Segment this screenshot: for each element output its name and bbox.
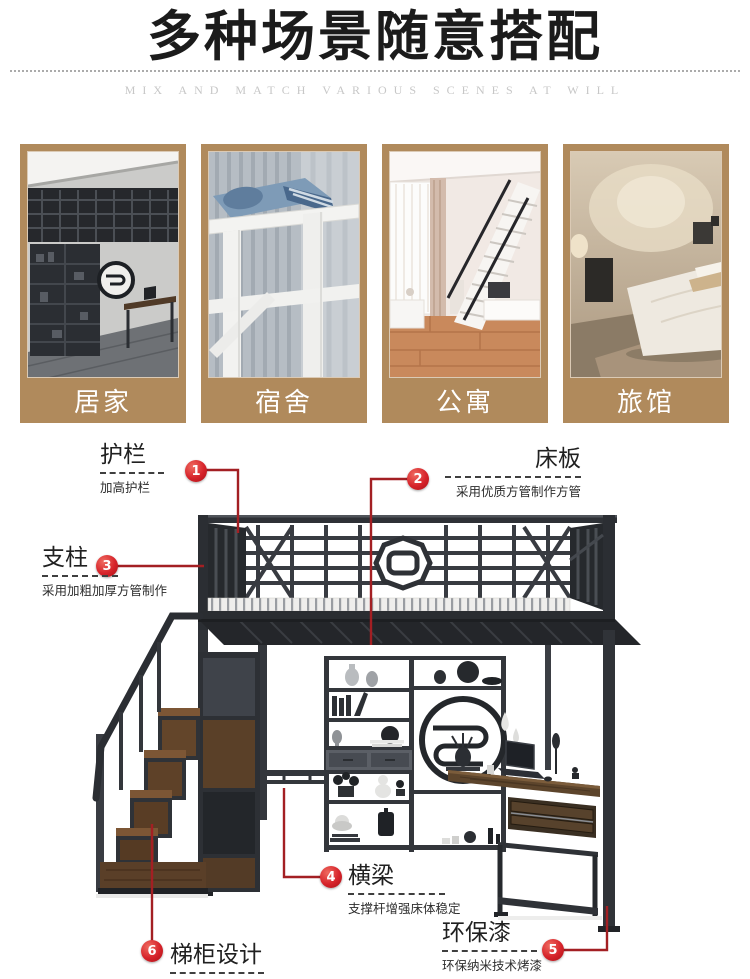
scene-card-hotel: 旅馆: [563, 144, 729, 423]
photo-hotel-bedroom: [571, 152, 721, 377]
dashed-underline: [445, 476, 581, 478]
callout-pillar-title: 支柱: [42, 546, 167, 571]
callout-crossbeam-title: 横梁: [348, 864, 461, 889]
callout-guardrail: 护栏 加高护栏: [100, 443, 164, 496]
scene-label-home: 居家: [28, 377, 178, 423]
dashed-underline: [348, 893, 445, 895]
callout-crossbeam-desc: 支撑杆增强床体稳定: [348, 898, 461, 917]
scene-label-dorm: 宿舍: [209, 377, 359, 423]
callout-pillar-desc: 采用加粗加厚方管制作: [42, 580, 167, 599]
scene-card-dorm: 宿舍: [201, 144, 367, 423]
badge-5: 5: [542, 939, 564, 961]
page-subtitle: MIX AND MATCH VARIOUS SCENES AT WILL: [0, 83, 750, 98]
callout-eco-paint-desc: 环保纳米技术烤漆: [442, 955, 542, 974]
callout-pillar: 支柱 采用加粗加厚方管制作: [42, 546, 167, 599]
callout-guardrail-title: 护栏: [100, 443, 164, 468]
scene-label-hotel: 旅馆: [571, 377, 721, 423]
callout-eco-paint: 环保漆 环保纳米技术烤漆: [442, 921, 542, 974]
promo-page: 多种场景随意搭配 MIX AND MATCH VARIOUS SCENES AT…: [0, 0, 750, 979]
dashed-underline: [442, 950, 537, 952]
callout-crossbeam: 横梁 支撑杆增强床体稳定: [348, 864, 461, 917]
badge-2: 2: [407, 468, 429, 490]
callout-bed-board-desc: 采用优质方管制作方管: [445, 481, 581, 500]
dashed-underline: [42, 575, 118, 577]
hotel-scene-illustration: [571, 152, 721, 377]
dashed-underline: [100, 472, 164, 474]
badge-6: 6: [141, 940, 163, 962]
page-title: 多种场景随意搭配: [0, 0, 750, 71]
badge-1: 1: [185, 460, 207, 482]
photo-home-loft: [28, 152, 178, 377]
product-diagram: 1 2 3 4 5 6 护栏 加高护栏 床板 采用优质方管制作方管 支柱 采用加…: [0, 430, 750, 979]
dorm-scene-illustration: [209, 152, 359, 377]
callout-eco-paint-title: 环保漆: [442, 921, 542, 946]
photo-apartment-stairs: [390, 152, 540, 377]
home-scene-illustration: [28, 152, 178, 377]
dotted-divider: [10, 70, 740, 72]
callout-guardrail-desc: 加高护栏: [100, 477, 164, 496]
scene-card-home: 居家: [20, 144, 186, 423]
callout-ladder-cabinet: 梯柜设计 梯柜设计，合理利用空间: [170, 943, 308, 979]
scene-cards: 居家: [20, 144, 732, 423]
callout-bed-board-title: 床板: [445, 447, 581, 472]
callout-bed-board: 床板 采用优质方管制作方管: [445, 447, 581, 500]
apartment-scene-illustration: [390, 152, 540, 377]
dashed-underline: [170, 972, 264, 974]
scene-label-apartment: 公寓: [390, 377, 540, 423]
scene-card-apartment: 公寓: [382, 144, 548, 423]
photo-dorm-bunk: [209, 152, 359, 377]
callout-ladder-cabinet-title: 梯柜设计: [170, 943, 308, 968]
badge-4: 4: [320, 866, 342, 888]
